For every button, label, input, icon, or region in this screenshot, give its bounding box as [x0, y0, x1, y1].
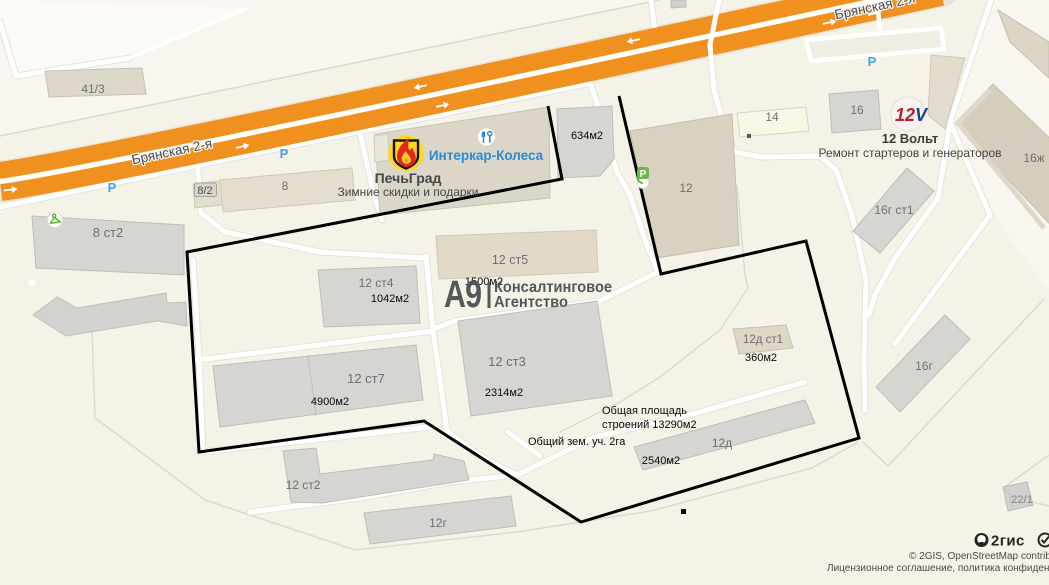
svg-text:12 ст7: 12 ст7 [347, 371, 385, 386]
svg-text:12 ст5: 12 ст5 [492, 253, 528, 267]
svg-text:Лицензионное соглашение, полит: Лицензионное соглашение, политика конфид… [827, 562, 1049, 574]
svg-text:Зимние скидки и подарки: Зимние скидки и подарки [337, 185, 478, 199]
svg-text:12V: 12V [895, 105, 929, 125]
svg-text:12 Вольт: 12 Вольт [882, 131, 939, 146]
svg-text:Интеркар-Колеса: Интеркар-Колеса [429, 148, 544, 163]
svg-text:12: 12 [679, 181, 693, 195]
svg-text:8 ст2: 8 ст2 [93, 225, 124, 240]
svg-text:2540м2: 2540м2 [642, 455, 680, 467]
svg-text:2314м2: 2314м2 [485, 387, 523, 399]
svg-text:А9: А9 [444, 274, 481, 316]
svg-text:4900м2: 4900м2 [311, 396, 349, 408]
svg-text:12 ст4: 12 ст4 [359, 276, 394, 290]
svg-text:16ж: 16ж [1023, 151, 1044, 165]
svg-text:634м2: 634м2 [571, 130, 603, 142]
svg-text:16: 16 [850, 103, 864, 117]
svg-text:12г: 12г [429, 516, 447, 530]
svg-text:12д ст1: 12д ст1 [743, 334, 783, 346]
svg-text:© 2GIS, OpenStreetMap contribu: © 2GIS, OpenStreetMap contributors [909, 551, 1049, 562]
svg-text:16г: 16г [915, 359, 933, 373]
svg-text:8: 8 [282, 179, 289, 193]
svg-text:12 ст3: 12 ст3 [488, 354, 526, 369]
svg-text:1042м2: 1042м2 [371, 293, 409, 305]
svg-text:41/3: 41/3 [81, 82, 105, 96]
svg-text:P: P [280, 146, 289, 161]
svg-text:2гис: 2гис [991, 533, 1025, 550]
svg-text:16г ст1: 16г ст1 [874, 203, 914, 217]
svg-text:строений 13290м2: строений 13290м2 [602, 419, 697, 431]
svg-text:P: P [108, 180, 117, 195]
svg-text:12д: 12д [712, 436, 732, 450]
svg-text:14: 14 [765, 110, 779, 124]
svg-text:360м2: 360м2 [745, 352, 777, 364]
svg-text:P: P [640, 169, 647, 180]
svg-text:22/1: 22/1 [1011, 494, 1032, 506]
svg-text:12 ст2: 12 ст2 [286, 478, 321, 492]
svg-text:P: P [868, 54, 877, 69]
svg-text:Агентство: Агентство [494, 294, 568, 311]
svg-text:Общая площадь: Общая площадь [602, 405, 687, 417]
svg-text:ПечьГрад: ПечьГрад [375, 170, 442, 186]
svg-text:Общий зем. уч. 2га: Общий зем. уч. 2га [528, 436, 626, 448]
svg-text:Ремонт стартеров и генераторов: Ремонт стартеров и генераторов [818, 146, 1001, 160]
svg-text:8/2: 8/2 [197, 185, 212, 197]
